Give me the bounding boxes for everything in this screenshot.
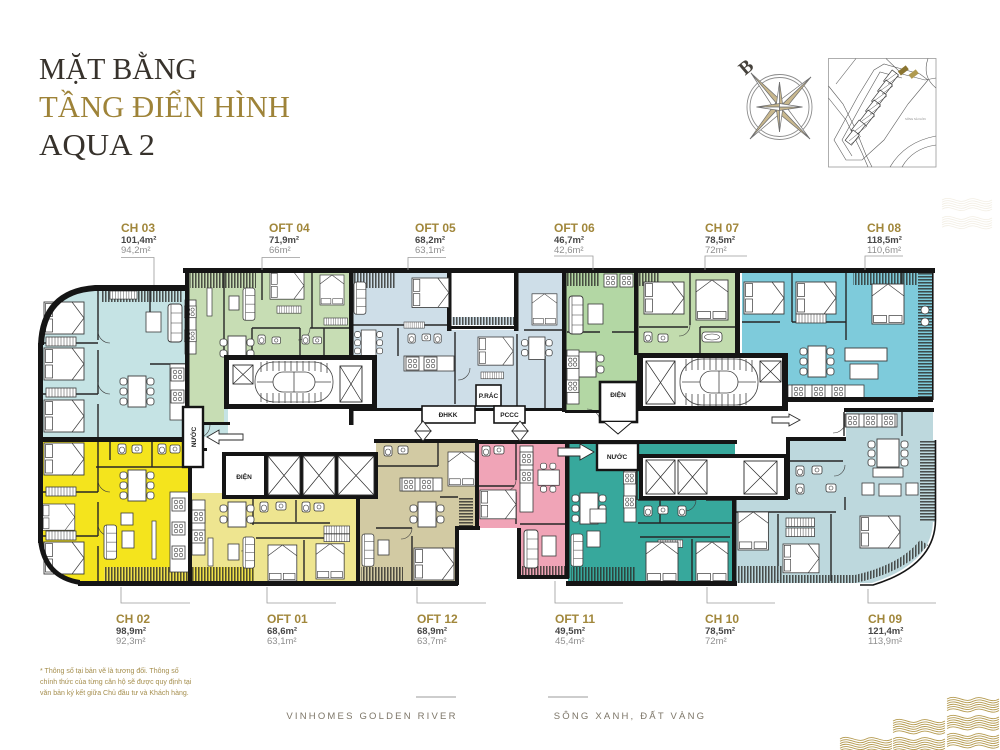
svg-text:OFT 04: OFT 04 — [269, 221, 310, 235]
svg-text:63,7m²: 63,7m² — [417, 636, 447, 647]
svg-text:OFT 05: OFT 05 — [415, 221, 456, 235]
svg-text:63,1m²: 63,1m² — [267, 636, 297, 647]
svg-text:OFT 12: OFT 12 — [417, 612, 458, 626]
svg-text:CH 08: CH 08 — [867, 221, 901, 235]
svg-text:SÔNG XANH, ĐẤT VÀNG: SÔNG XANH, ĐẤT VÀNG — [554, 711, 706, 722]
svg-text:SÔNG SÀI GÒN: SÔNG SÀI GÒN — [905, 116, 926, 121]
svg-text:OFT 11: OFT 11 — [555, 612, 595, 626]
svg-text:OFT 01: OFT 01 — [267, 612, 308, 626]
svg-text:66m²: 66m² — [269, 245, 291, 256]
svg-text:CH 09: CH 09 — [868, 612, 902, 626]
svg-text:NƯỚC: NƯỚC — [189, 427, 198, 448]
svg-text:45,4m²: 45,4m² — [555, 636, 585, 647]
svg-text:chính thức của từng căn hộ sẽ: chính thức của từng căn hộ sẽ được quy đ… — [40, 678, 192, 686]
svg-text:* Thông số tại bản vẽ là tương: * Thông số tại bản vẽ là tương đối. Thôn… — [40, 666, 179, 675]
svg-text:MẶT BẰNG: MẶT BẰNG — [39, 51, 197, 86]
svg-text:CH 03: CH 03 — [121, 221, 155, 235]
svg-text:ĐHKK: ĐHKK — [439, 412, 458, 419]
svg-text:NƯỚC: NƯỚC — [607, 452, 628, 461]
svg-text:PCCC: PCCC — [500, 412, 519, 419]
svg-text:63,1m²: 63,1m² — [415, 245, 445, 256]
svg-text:113,9m²: 113,9m² — [868, 636, 902, 647]
svg-text:92,3m²: 92,3m² — [116, 636, 146, 647]
svg-text:OFT 06: OFT 06 — [554, 221, 595, 235]
svg-text:CH 10: CH 10 — [705, 612, 739, 626]
svg-text:AQUA 2: AQUA 2 — [39, 127, 155, 162]
svg-text:72m²: 72m² — [705, 245, 727, 256]
svg-text:42,6m²: 42,6m² — [554, 245, 584, 256]
svg-text:ĐIỆN: ĐIỆN — [610, 390, 626, 399]
svg-text:P.RÁC: P.RÁC — [479, 391, 499, 400]
svg-text:ĐIỆN: ĐIỆN — [236, 472, 252, 481]
svg-text:văn bản ký kết giữa Chủ đầu tư: văn bản ký kết giữa Chủ đầu tư và Khách … — [40, 688, 189, 697]
svg-text:CH 07: CH 07 — [705, 221, 739, 235]
svg-text:VINHOMES GOLDEN RIVER: VINHOMES GOLDEN RIVER — [286, 711, 457, 722]
svg-text:72m²: 72m² — [705, 636, 727, 647]
svg-text:CH 02: CH 02 — [116, 612, 150, 626]
svg-text:94,2m²: 94,2m² — [121, 245, 151, 256]
svg-text:TẦNG ĐIỂN HÌNH: TẦNG ĐIỂN HÌNH — [39, 89, 290, 124]
svg-text:110,6m²: 110,6m² — [867, 245, 901, 256]
